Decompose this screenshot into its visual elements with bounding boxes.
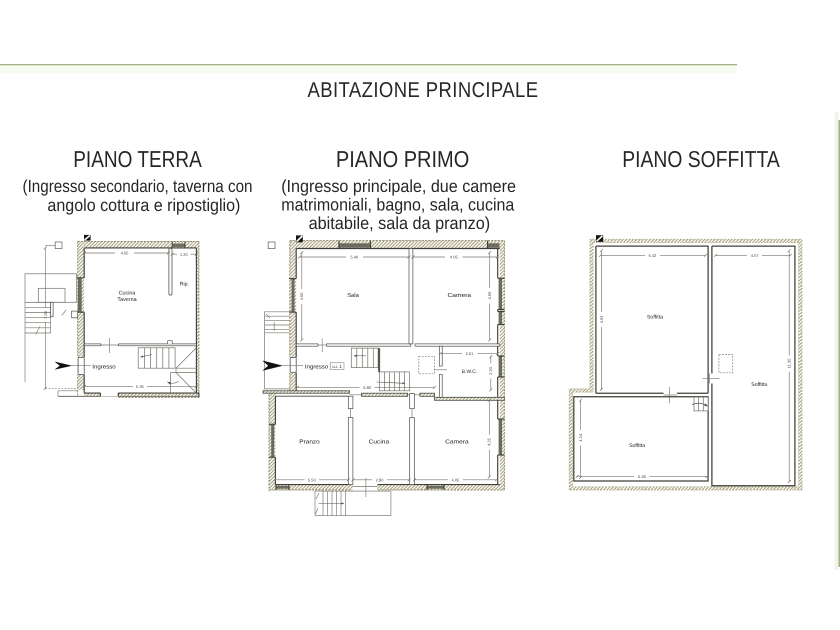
- svg-text:Rip.: Rip.: [180, 282, 189, 288]
- svg-text:4.93: 4.93: [599, 315, 604, 324]
- svg-text:Soffitta: Soffitta: [751, 382, 767, 388]
- svg-text:5.50: 5.50: [308, 477, 317, 482]
- svg-text:Pranzo: Pranzo: [299, 439, 320, 445]
- svg-text:2.80: 2.80: [376, 477, 385, 482]
- svg-text:ABITAZIONE PRINCIPALE: ABITAZIONE PRINCIPALE: [308, 78, 539, 102]
- svg-text:B.W.C.: B.W.C.: [462, 369, 478, 375]
- svg-text:6.80: 6.80: [363, 385, 372, 390]
- svg-text:1.20: 1.20: [180, 252, 189, 257]
- svg-text:4.07: 4.07: [751, 253, 760, 258]
- svg-text:Soffitta: Soffitta: [647, 315, 663, 321]
- svg-text:5.40: 5.40: [351, 255, 360, 260]
- svg-text:4.05: 4.05: [452, 477, 461, 482]
- svg-text:Sala: Sala: [347, 292, 359, 299]
- svg-text:7.00: 7.00: [43, 310, 48, 319]
- svg-text:angolo cottura e ripostiglio): angolo cottura e ripostiglio): [47, 195, 240, 215]
- svg-text:PIANO TERRA: PIANO TERRA: [73, 146, 202, 172]
- svg-text:Soffitta: Soffitta: [629, 443, 645, 449]
- svg-text:5.42: 5.42: [649, 253, 658, 258]
- svg-text:PIANO SOFFITTA: PIANO SOFFITTA: [622, 146, 780, 172]
- svg-text:4.05: 4.05: [121, 251, 130, 256]
- svg-text:5.35: 5.35: [136, 384, 145, 389]
- svg-text:2.61: 2.61: [466, 351, 475, 356]
- svg-text:4.50: 4.50: [299, 292, 304, 301]
- svg-text:2.20: 2.20: [488, 366, 493, 375]
- svg-text:6.38: 6.38: [638, 474, 647, 479]
- svg-text:4.60: 4.60: [487, 291, 492, 300]
- svg-text:(Ingresso principale, due came: (Ingresso principale, due camere: [281, 176, 516, 196]
- svg-text:Camera: Camera: [448, 292, 472, 299]
- svg-text:(Ingresso secondario, taverna: (Ingresso secondario, taverna con: [23, 176, 253, 196]
- svg-text:Cucina: Cucina: [119, 291, 136, 297]
- svg-text:Camera: Camera: [445, 438, 469, 445]
- svg-text:abitabile, sala da pranzo): abitabile, sala da pranzo): [309, 213, 491, 233]
- svg-text:matrimoniali, bagno, sala, cuc: matrimoniali, bagno, sala, cucina: [281, 195, 514, 215]
- svg-text:11.30: 11.30: [787, 358, 792, 368]
- svg-text:Cucina: Cucina: [369, 438, 390, 445]
- svg-text:4.05: 4.05: [450, 255, 459, 260]
- svg-text:4.24: 4.24: [578, 433, 583, 442]
- svg-text:Taverna: Taverna: [117, 297, 136, 303]
- svg-text:Ingresso: Ingresso: [305, 365, 328, 371]
- svg-text:Ingresso: Ingresso: [92, 365, 115, 371]
- svg-text:PIANO PRIMO: PIANO PRIMO: [336, 146, 469, 172]
- svg-text:4.25: 4.25: [487, 437, 492, 446]
- svg-text:u.i. 1: u.i. 1: [332, 364, 342, 369]
